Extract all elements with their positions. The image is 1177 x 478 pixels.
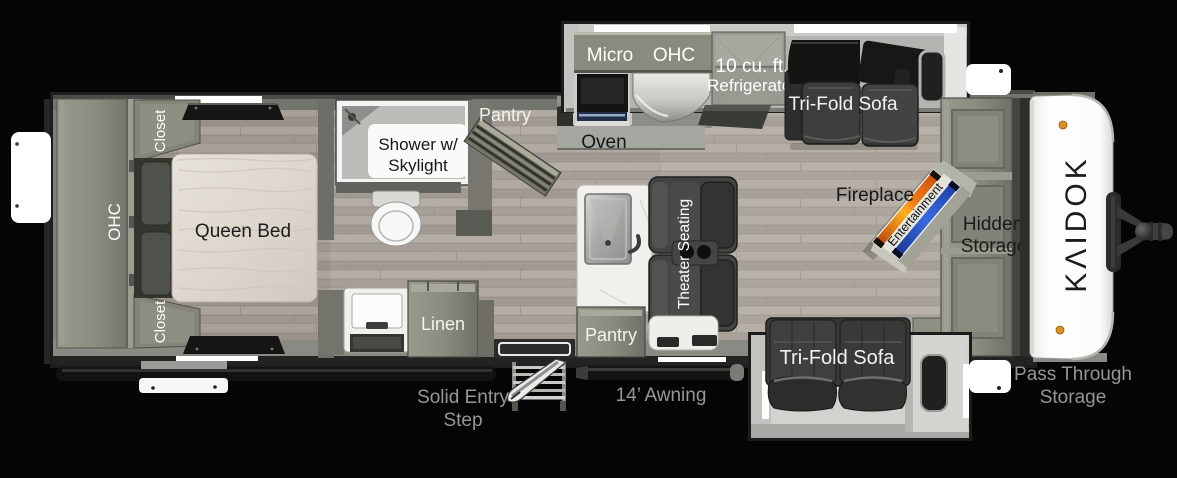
svg-text:Skylight: Skylight (388, 156, 448, 175)
svg-text:Theater Seating: Theater Seating (676, 199, 693, 309)
svg-text:Linen: Linen (421, 314, 465, 334)
svg-text:Pantry: Pantry (585, 325, 637, 345)
svg-text:Storage: Storage (1040, 387, 1107, 408)
svg-text:Step: Step (443, 410, 482, 431)
svg-text:Solid Entry: Solid Entry (417, 387, 509, 408)
svg-text:Shower w/: Shower w/ (378, 135, 458, 154)
svg-text:14’ Awning: 14’ Awning (616, 385, 707, 406)
svg-text:OHC: OHC (105, 203, 124, 241)
svg-text:Pantry: Pantry (479, 105, 531, 125)
svg-text:OHC: OHC (653, 45, 695, 66)
svg-text:Hidden: Hidden (963, 214, 1023, 235)
svg-text:10 cu. ft.: 10 cu. ft. (716, 56, 789, 77)
svg-text:Tri-Fold Sofa: Tri-Fold Sofa (780, 347, 896, 369)
svg-text:Queen Bed: Queen Bed (195, 221, 291, 242)
svg-text:Closet: Closet (152, 109, 169, 152)
svg-text:Fireplace: Fireplace (836, 185, 914, 206)
svg-text:KΛIDOK: KΛIDOK (1060, 155, 1093, 292)
svg-text:Oven: Oven (581, 132, 626, 153)
svg-text:Refrigerator: Refrigerator (707, 76, 797, 95)
svg-text:Pass Through: Pass Through (1014, 364, 1132, 385)
svg-text:Tri-Fold Sofa: Tri-Fold Sofa (788, 94, 898, 115)
svg-text:Closet: Closet (152, 300, 169, 343)
svg-text:Storage: Storage (961, 236, 1028, 257)
svg-text:Micro: Micro (587, 45, 633, 66)
